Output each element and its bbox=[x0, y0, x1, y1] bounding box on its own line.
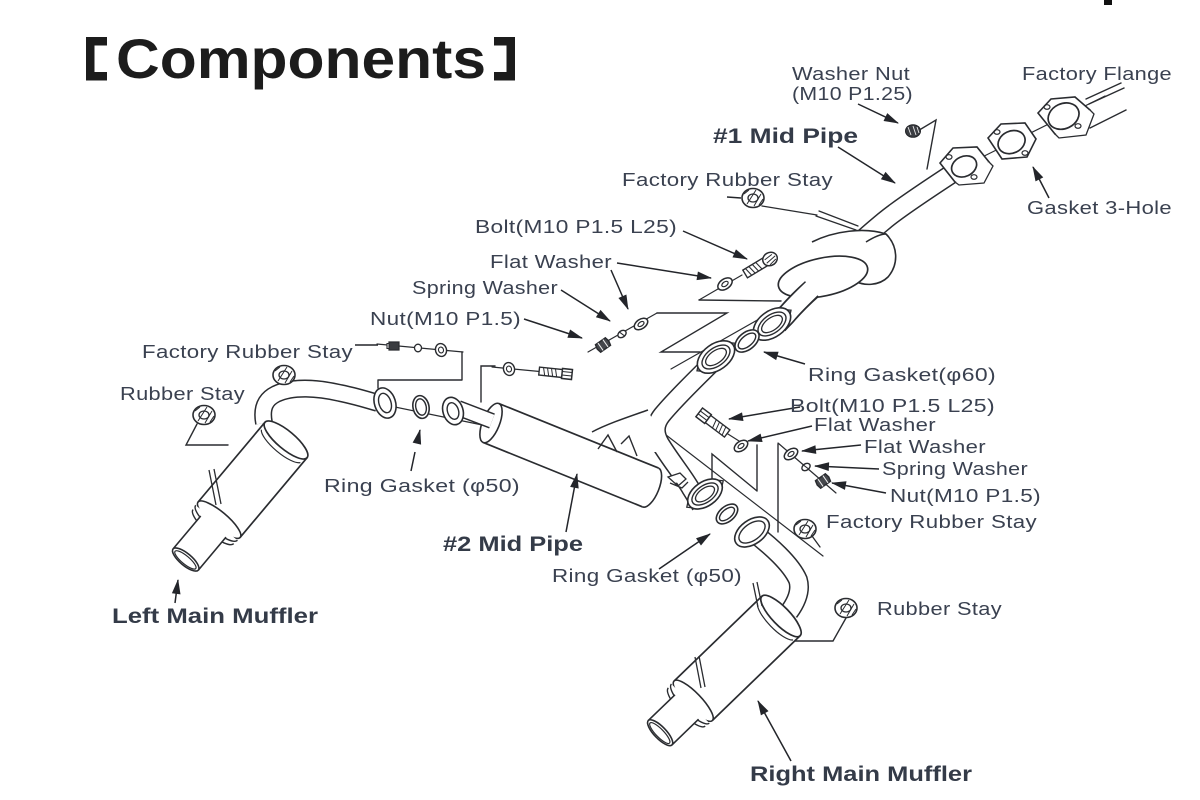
svg-text:#2 Mid Pipe: #2 Mid Pipe bbox=[443, 533, 583, 556]
svg-text:Nut(M10 P1.5): Nut(M10 P1.5) bbox=[890, 485, 1041, 506]
svg-text:Factory Flange: Factory Flange bbox=[1022, 63, 1172, 84]
svg-text:Factory Rubber Stay: Factory Rubber Stay bbox=[826, 511, 1038, 532]
svg-text:Bolt(M10 P1.5 L25): Bolt(M10 P1.5 L25) bbox=[475, 216, 677, 237]
svg-text:Rubber Stay: Rubber Stay bbox=[120, 383, 246, 404]
svg-text:Spring Washer: Spring Washer bbox=[882, 458, 1028, 479]
svg-text:Left Main Muffler: Left Main Muffler bbox=[112, 605, 318, 628]
svg-text:Bolt(M10 P1.5 L25): Bolt(M10 P1.5 L25) bbox=[790, 395, 995, 416]
svg-text:Flat Washer: Flat Washer bbox=[814, 414, 936, 435]
svg-text:Ring Gasket (φ50): Ring Gasket (φ50) bbox=[324, 475, 520, 496]
svg-text:Spring Washer: Spring Washer bbox=[412, 277, 558, 298]
svg-text:Ring Gasket (φ50): Ring Gasket (φ50) bbox=[552, 565, 742, 586]
svg-text:Ring Gasket(φ60): Ring Gasket(φ60) bbox=[808, 364, 996, 385]
svg-text:Flat Washer: Flat Washer bbox=[864, 436, 986, 457]
svg-text:Nut(M10 P1.5): Nut(M10 P1.5) bbox=[370, 308, 521, 329]
svg-text:Rubber Stay: Rubber Stay bbox=[877, 598, 1003, 619]
svg-text:Flat Washer: Flat Washer bbox=[490, 251, 612, 272]
svg-text:Right Main Muffler: Right Main Muffler bbox=[750, 763, 972, 786]
svg-text:#1 Mid Pipe: #1 Mid Pipe bbox=[713, 125, 858, 148]
svg-text:Washer Nut: Washer Nut bbox=[792, 63, 910, 84]
svg-text:(M10 P1.25): (M10 P1.25) bbox=[792, 83, 913, 104]
svg-text:Factory Rubber Stay: Factory Rubber Stay bbox=[142, 341, 354, 362]
svg-text:Factory Rubber Stay: Factory Rubber Stay bbox=[622, 169, 834, 190]
svg-text:Gasket 3-Hole: Gasket 3-Hole bbox=[1027, 197, 1172, 218]
svg-text:Components: Components bbox=[116, 27, 486, 90]
